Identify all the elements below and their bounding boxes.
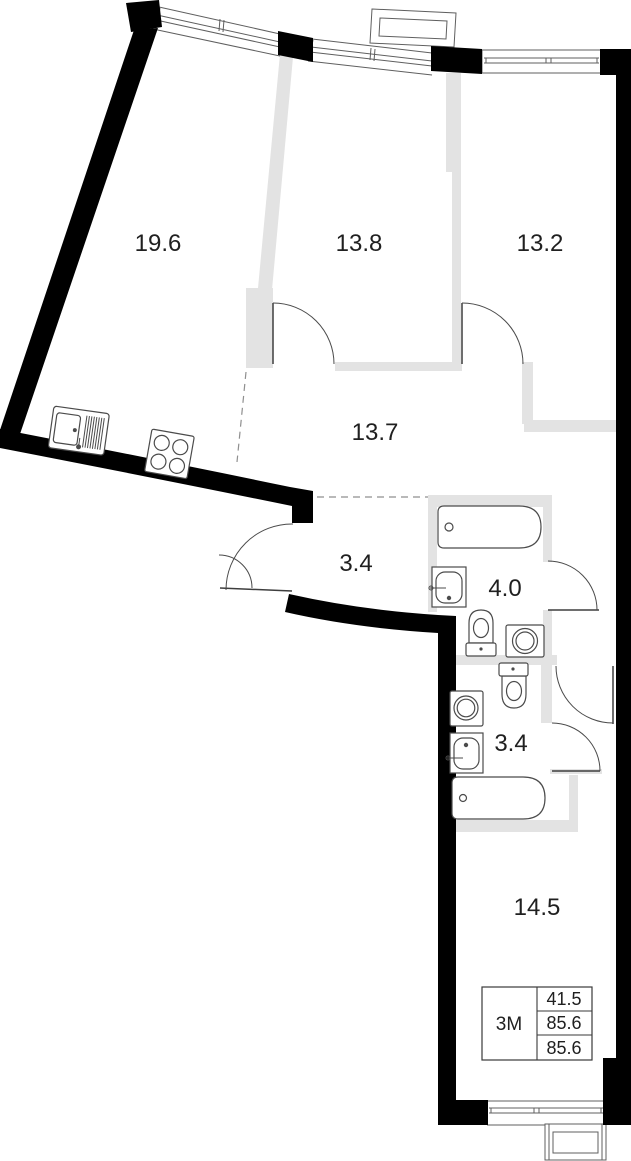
kitchen-sink-icon: [48, 406, 109, 455]
bathtub-icon: [438, 506, 541, 548]
room-area-label-bedroom-2: 13.2: [517, 230, 564, 257]
room-area-label-bedroom-1: 13.8: [336, 230, 383, 257]
sink-icon: [446, 733, 483, 773]
washing-machine-icon: [450, 691, 483, 726]
area-value-total: 85.6: [546, 1013, 581, 1033]
room-area-label-wc: 3.4: [494, 730, 527, 757]
toilet-icon: [466, 610, 496, 656]
toilet-icon: [499, 663, 528, 708]
apartment-type-label: 3М: [496, 1014, 522, 1035]
sink-icon: [429, 567, 466, 607]
washing-machine-icon: [506, 625, 544, 657]
room-area-label-bedroom-3: 14.5: [514, 894, 561, 921]
ac-unit-box-top: [370, 9, 456, 47]
apartment-summary-table: 3М 41.5 85.6 85.6: [482, 987, 592, 1060]
floor-plan: 19.6 13.8 13.2 13.7 3.4 4.0 3.4 14.5 3М …: [0, 0, 631, 1161]
room-area-label-hallway: 3.4: [339, 550, 372, 577]
area-value-overall: 85.6: [546, 1038, 581, 1058]
room-area-label-corridor: 13.7: [352, 419, 399, 446]
bathtub-icon: [452, 777, 545, 819]
room-area-label-kitchen-living: 19.6: [135, 230, 182, 257]
ac-unit-box-bottom: [545, 1124, 606, 1160]
room-area-label-bathroom: 4.0: [488, 575, 521, 602]
area-value-living: 41.5: [546, 989, 581, 1009]
stove-icon: [145, 429, 195, 479]
